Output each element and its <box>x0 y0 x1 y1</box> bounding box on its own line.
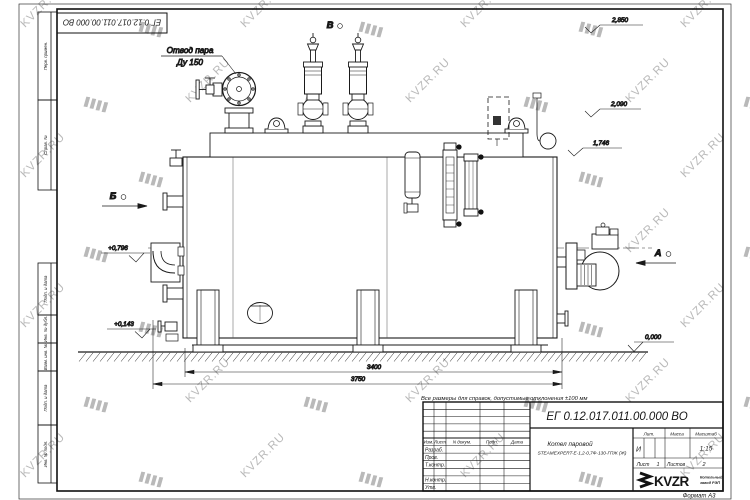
watermark-text: KVZR.RU <box>679 281 728 330</box>
watermark-text: KVZR.RU <box>679 431 728 480</box>
elbow-duct <box>151 243 184 282</box>
steam-outlet-label-2: Ду 150 <box>176 58 203 67</box>
burner <box>566 223 619 290</box>
elevation-platform-top: 2,090 <box>610 101 627 108</box>
row-nkontr: Н.контр. <box>425 478 446 484</box>
watermark-logo-icon <box>355 14 387 46</box>
margin-label-podp-data-2: Подп. и дата <box>43 384 48 412</box>
tolerance-note: Все размеры для справок, допустимые откл… <box>421 396 587 402</box>
elevation-shell-top: 1,746 <box>593 140 609 147</box>
watermark-text: KVZR.RU <box>679 131 728 180</box>
watermark-logo-icon <box>740 89 750 121</box>
header-podp: Подп. <box>486 440 498 445</box>
watermark-logo-icon <box>135 314 167 346</box>
watermark-logo-icon <box>575 164 607 196</box>
svg-text:Б: Б <box>110 191 117 202</box>
margin-label-inv-dubl: Инв. № дубл. <box>43 316 48 342</box>
svg-text:А: А <box>654 248 662 259</box>
watermark-logo-icon <box>80 89 112 121</box>
manhole <box>248 303 273 324</box>
margin-label-perv-primen: Перв. примен. <box>43 42 48 71</box>
ground-hatch <box>79 353 646 362</box>
siphon-loop <box>533 93 556 149</box>
watermark-logo-icon <box>575 314 607 346</box>
spring-icon <box>640 473 650 487</box>
support-leg-2 <box>353 290 383 352</box>
steam-platform <box>210 133 523 157</box>
lifting-lug-right <box>505 118 528 133</box>
row-prov: Пров. <box>425 455 438 461</box>
row-razrab: Разраб. <box>425 448 443 454</box>
company-name-2: завод РЭП <box>700 481 720 485</box>
header-ndoc: N докум. <box>453 440 472 445</box>
watermark-logo-icon <box>740 239 750 271</box>
header-izm: Изм. <box>424 440 434 445</box>
svg-text:В: В <box>327 20 334 31</box>
elevation-valves-top: 2,850 <box>611 17 628 24</box>
product-name: Котел паровой <box>547 440 593 448</box>
watermark-text: KVZR.RU <box>239 431 288 480</box>
margin-labels: Перв. примен. Справ. № Подп. и дата Инв.… <box>43 42 48 468</box>
support-leg-1 <box>193 290 223 352</box>
watermark-logo-icon <box>575 14 607 46</box>
margin-label-inv-podl: Инв. № подл. <box>43 441 48 468</box>
title-block: ЕГ 0.12.017.011.00.000 ВО Котел паровой … <box>423 402 723 500</box>
row-utv: Утв. <box>425 485 436 491</box>
watermark-text: KVZR.RU <box>239 0 288 30</box>
elevation-shell-bottom: +0,143 <box>114 321 134 328</box>
watermark-text: KVZR.RU <box>679 0 728 30</box>
dimension-overall-length: 3750 <box>351 376 366 383</box>
safety-valve-1 <box>298 33 328 133</box>
top-stamp-number: ЕГ 0.12.017.011.00.000 ВО <box>63 18 161 27</box>
watermark-logo-icon <box>300 389 332 421</box>
elevation-ground: 0,000 <box>645 334 661 341</box>
header-data: Дата <box>510 440 524 445</box>
drawing-sheet: KVZR.RUKVZR.RUKVZR.RUKVZR.RUKVZR.RUKVZR.… <box>0 0 750 500</box>
watermark-logo-icon <box>135 164 167 196</box>
lit-header: Лит. <box>643 432 655 437</box>
margin-label-sprav: Справ. № <box>43 135 48 155</box>
watermark-logo-icon <box>80 389 112 421</box>
title-doc-number: ЕГ 0.12.017.011.00.000 ВО <box>546 411 687 423</box>
elevation-elbow-axis: +0,796 <box>108 245 128 252</box>
margin-label-vzam-inv: Взам. инв. № <box>43 343 48 370</box>
row-tkontr: Т.контр. <box>425 463 445 469</box>
format-label: Формат А3 <box>683 494 716 500</box>
view-marker-b: Б <box>102 191 147 208</box>
sheet-value: 1 <box>656 462 659 468</box>
sampling-vessel <box>404 152 420 213</box>
lifting-lug-left <box>265 118 288 133</box>
company-logo-text: KVZR <box>654 474 690 489</box>
watermark-logo-icon <box>80 239 112 271</box>
watermark-text: KVZR.RU <box>459 0 508 30</box>
watermark-text: KVZR.RU <box>184 356 233 405</box>
header-list: Лист <box>433 440 446 445</box>
scale-header: Масштаб <box>695 432 717 437</box>
technical-drawing: KVZR.RUKVZR.RUKVZR.RUKVZR.RUKVZR.RUKVZR.… <box>0 0 750 500</box>
company-name-1: Котельный <box>700 476 723 480</box>
sheets-label: Листов <box>666 462 686 468</box>
support-leg-3 <box>511 290 541 352</box>
scale-value: 1:15 <box>700 446 713 453</box>
mass-header: Масса <box>670 432 684 437</box>
lit-value: И <box>636 447 642 454</box>
sheets-value: 2 <box>701 462 705 468</box>
view-marker-v: В <box>327 20 343 31</box>
product-model: STEAMEXPERT-Е-1,2-0,7Ф-130-ГПЖ (Ж) <box>538 451 627 456</box>
sheet-label: Лист <box>636 462 650 468</box>
company-logo: KVZR Котельный завод РЭП <box>640 473 723 489</box>
view-marker-a: А <box>636 248 676 265</box>
watermark-text: KVZR.RU <box>624 56 673 105</box>
safety-valve-2 <box>343 33 373 133</box>
dimension-support-span: 3400 <box>367 364 382 371</box>
top-stamp: ЕГ 0.12.017.011.00.000 ВО <box>57 13 167 33</box>
steam-outlet-label-1: Отвод пара <box>167 46 214 55</box>
sight-port-dashed <box>488 97 509 146</box>
watermark-logo-icon <box>740 389 750 421</box>
watermark-text: KVZR.RU <box>19 0 68 30</box>
margin-label-podp-data-1: Подп. и дата <box>43 275 48 303</box>
watermark-text: KVZR.RU <box>624 356 673 405</box>
watermark-text: KVZR.RU <box>404 56 453 105</box>
